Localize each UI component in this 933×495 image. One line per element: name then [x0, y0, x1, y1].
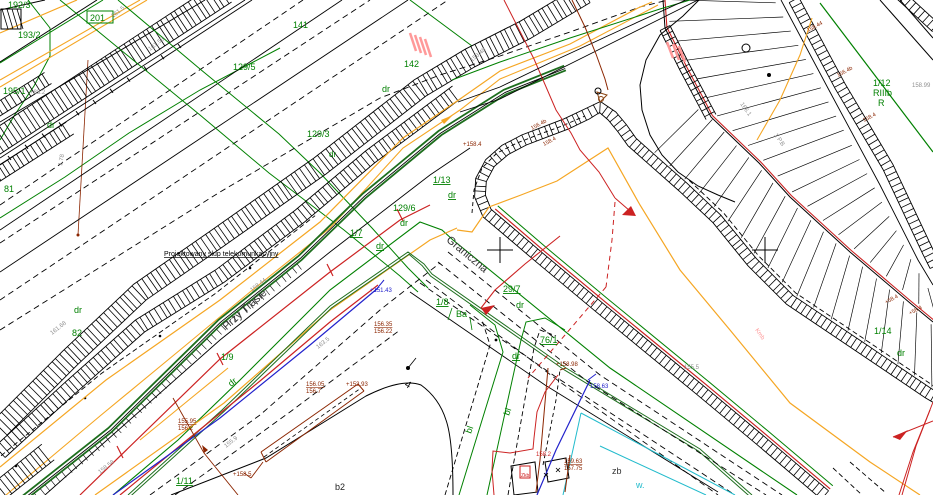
svg-text:dr: dr — [516, 300, 524, 310]
svg-text:dr: dr — [400, 218, 408, 228]
svg-text:Graniczna: Graniczna — [444, 234, 491, 276]
svg-text:dr: dr — [376, 241, 384, 251]
svg-text:dr: dr — [74, 305, 82, 315]
svg-text:192/3: 192/3 — [8, 0, 31, 10]
svg-text:+83.2: +83.2 — [30, 90, 46, 96]
svg-text:1/13: 1/13 — [433, 175, 451, 185]
svg-text:193/2: 193/2 — [18, 30, 41, 40]
svg-text:zb: zb — [612, 466, 622, 476]
svg-text:141: 141 — [293, 20, 308, 30]
svg-text:Projektowany slup telekomunkac: Projektowany slup telekomunkacyjny — [164, 251, 279, 258]
svg-text:w.: w. — [635, 480, 645, 490]
svg-text:dr: dr — [897, 348, 905, 358]
svg-text:158.4: 158.4 — [862, 112, 877, 124]
svg-text:+153.93: +153.93 — [346, 382, 369, 388]
svg-text:161.68: 161.68 — [50, 320, 69, 336]
svg-text:158.99: 158.99 — [912, 83, 931, 89]
svg-text:dr: dr — [512, 351, 520, 361]
svg-text:+58.4: +58.4 — [908, 305, 923, 317]
svg-text:156.22: 156.22 — [374, 329, 393, 335]
svg-text:b2: b2 — [335, 482, 345, 492]
svg-text:1/14: 1/14 — [874, 326, 892, 336]
svg-text:RIIIb: RIIIb — [873, 88, 892, 98]
svg-text:4: 4 — [403, 379, 414, 392]
svg-text:129/3: 129/3 — [307, 129, 330, 139]
svg-text:1/7: 1/7 — [350, 228, 363, 238]
svg-text:159.63: 159.63 — [564, 459, 583, 465]
svg-text:dr: dr — [329, 150, 336, 159]
svg-text:+58.4: +58.4 — [884, 294, 899, 306]
svg-text:158.44: 158.44 — [806, 21, 824, 34]
svg-text:195/1: 195/1 — [3, 86, 26, 96]
svg-text:156.05: 156.05 — [306, 382, 325, 388]
svg-text:76/1: 76/1 — [540, 335, 558, 345]
svg-text:dr: dr — [226, 376, 238, 389]
svg-text:Ba: Ba — [456, 309, 467, 319]
svg-text:dr: dr — [448, 190, 456, 200]
svg-text:+158.98: +158.98 — [556, 362, 579, 368]
svg-text:bl: bl — [463, 425, 475, 435]
svg-text:+158.5: +158.5 — [233, 472, 252, 478]
svg-text:1.78: 1.78 — [58, 153, 66, 166]
svg-text:+151.43: +151.43 — [370, 288, 393, 294]
svg-text:156.7: 156.7 — [306, 389, 322, 395]
svg-text:158.58: 158.58 — [98, 459, 117, 475]
svg-text:dr: dr — [47, 120, 55, 130]
svg-text:158.63: 158.63 — [590, 384, 609, 390]
svg-text:Zkb: Zkb — [521, 473, 530, 479]
svg-text:1/11: 1/11 — [176, 476, 193, 486]
svg-text:155.95: 155.95 — [178, 419, 197, 425]
svg-text:201: 201 — [90, 13, 105, 23]
svg-text:81: 81 — [4, 184, 14, 194]
svg-text:156.2: 156.2 — [178, 426, 194, 432]
svg-text:1/9: 1/9 — [221, 352, 234, 362]
svg-text:1/8: 1/8 — [436, 297, 449, 307]
svg-text:R: R — [878, 98, 885, 108]
svg-text:156.4b: 156.4b — [836, 66, 854, 79]
svg-text:129/5: 129/5 — [233, 62, 256, 72]
svg-text:Kmb: Kmb — [753, 328, 765, 342]
svg-text:156.35: 156.35 — [374, 322, 393, 328]
svg-text:bl: bl — [501, 407, 513, 417]
svg-text:155.5: 155.5 — [684, 365, 700, 371]
svg-text:29/7: 29/7 — [503, 284, 521, 294]
svg-text:1/12: 1/12 — [873, 78, 891, 88]
svg-text:155.9: 155.9 — [224, 435, 240, 449]
svg-text:157.75: 157.75 — [564, 466, 583, 472]
svg-text:1 P.B: 1 P.B — [772, 133, 785, 148]
svg-text:129/6: 129/6 — [393, 203, 416, 213]
svg-text:dr: dr — [382, 84, 390, 94]
svg-text:+158.4: +158.4 — [463, 142, 482, 148]
svg-text:142: 142 — [404, 59, 419, 69]
svg-text:158.2: 158.2 — [536, 452, 552, 458]
svg-text:82: 82 — [72, 328, 82, 338]
